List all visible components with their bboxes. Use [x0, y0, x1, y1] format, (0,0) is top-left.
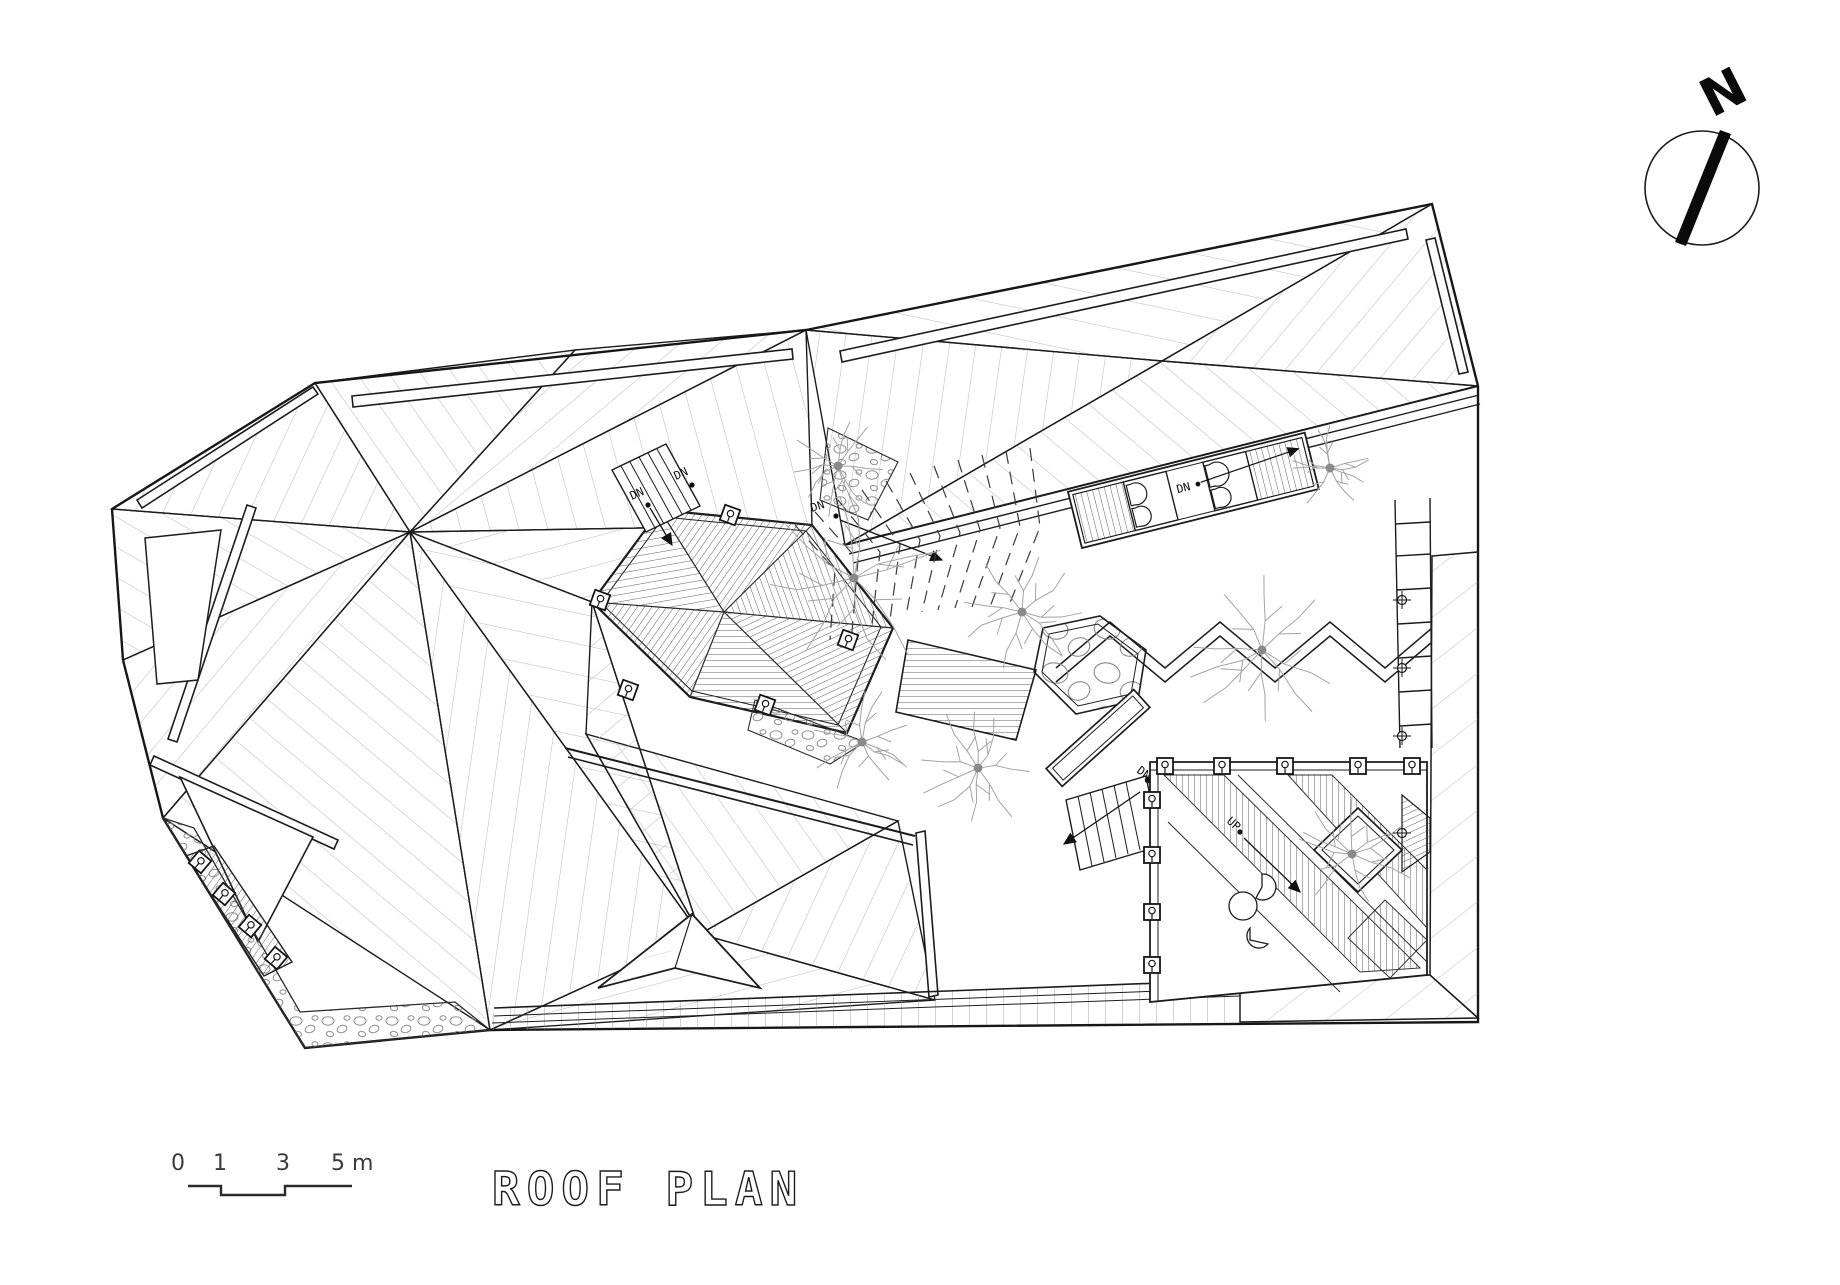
scale-tick-3: 3 — [276, 1151, 290, 1176]
anchor-symbol — [1393, 727, 1411, 745]
sheet-title: ROOF PLAN — [492, 1162, 804, 1216]
post-symbol — [1214, 758, 1230, 774]
scale-bar-line — [188, 1186, 352, 1195]
north-needle — [1675, 130, 1731, 246]
post-symbol — [1350, 758, 1366, 774]
post-symbol — [1144, 904, 1160, 920]
scale-tick-5m: 5 m — [331, 1151, 373, 1176]
terrace — [1150, 762, 1430, 1002]
tree — [1190, 575, 1329, 721]
post-symbol — [1157, 758, 1173, 774]
post-symbol — [1144, 847, 1160, 863]
roof-plan-sheet: DN DN DN DN — [0, 0, 1840, 1285]
right-shelf-strip — [1395, 498, 1432, 748]
roof-plan-drawing: DN DN DN DN — [0, 0, 1840, 1285]
scale-tick-0: 0 — [171, 1151, 185, 1176]
post-symbol — [1277, 758, 1293, 774]
north-label: N — [1691, 56, 1757, 129]
scale-bar: 0 1 3 5 m — [171, 1151, 373, 1195]
post-symbol — [1144, 957, 1160, 973]
north-arrow: N — [1645, 56, 1759, 246]
post-symbol — [1144, 792, 1160, 808]
scale-tick-1: 1 — [213, 1151, 227, 1176]
anchor-symbol — [1393, 591, 1411, 609]
post-symbol — [1404, 758, 1420, 774]
